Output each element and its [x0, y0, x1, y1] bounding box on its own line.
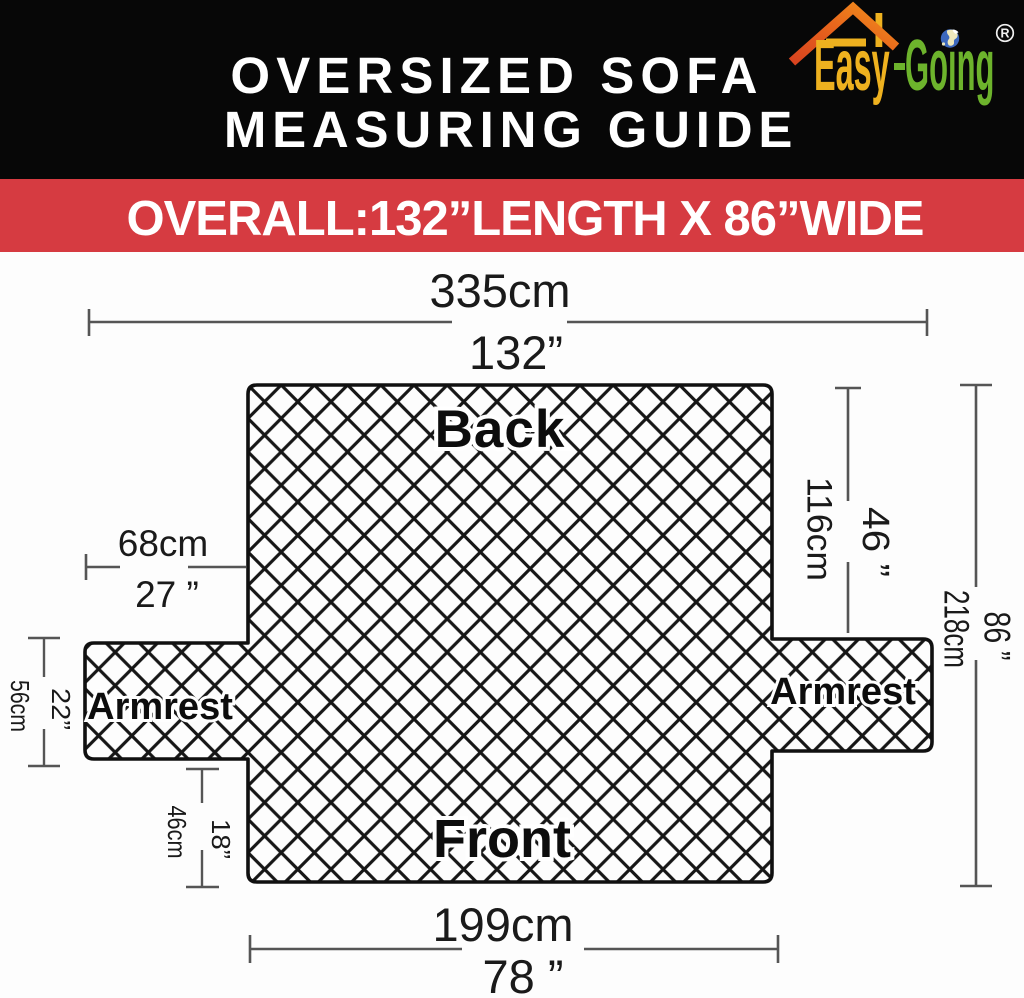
svg-text:132”: 132” [469, 326, 563, 379]
svg-text:27 ”: 27 ” [135, 574, 199, 615]
svg-text:Armrest: Armrest [770, 671, 916, 713]
svg-text:Back: Back [435, 400, 566, 459]
svg-text:22”: 22” [46, 688, 76, 730]
svg-text:199cm: 199cm [432, 898, 573, 951]
svg-text:MEASURING GUIDE: MEASURING GUIDE [224, 101, 798, 158]
svg-text:46 ”: 46 ” [854, 507, 896, 577]
svg-text:335cm: 335cm [429, 264, 570, 317]
svg-text:18”: 18” [206, 819, 236, 859]
svg-text:Easy: Easy [814, 24, 890, 105]
svg-text:R: R [1000, 27, 1009, 41]
svg-text:78 ”: 78 ” [483, 950, 564, 998]
svg-text:OVERSIZED SOFA: OVERSIZED SOFA [230, 47, 763, 104]
svg-text:56cm: 56cm [5, 680, 35, 732]
svg-text:OVERALL:132”LENGTH X 86”WIDE: OVERALL:132”LENGTH X 86”WIDE [127, 192, 924, 246]
svg-text:Armrest: Armrest [87, 686, 233, 728]
svg-text:46cm: 46cm [162, 806, 192, 859]
svg-text:68cm: 68cm [118, 523, 208, 564]
svg-text:86 ”: 86 ” [977, 612, 1018, 661]
svg-text:218cm: 218cm [937, 590, 976, 668]
svg-text:116cm: 116cm [800, 477, 839, 581]
svg-text:Front: Front [433, 809, 571, 869]
